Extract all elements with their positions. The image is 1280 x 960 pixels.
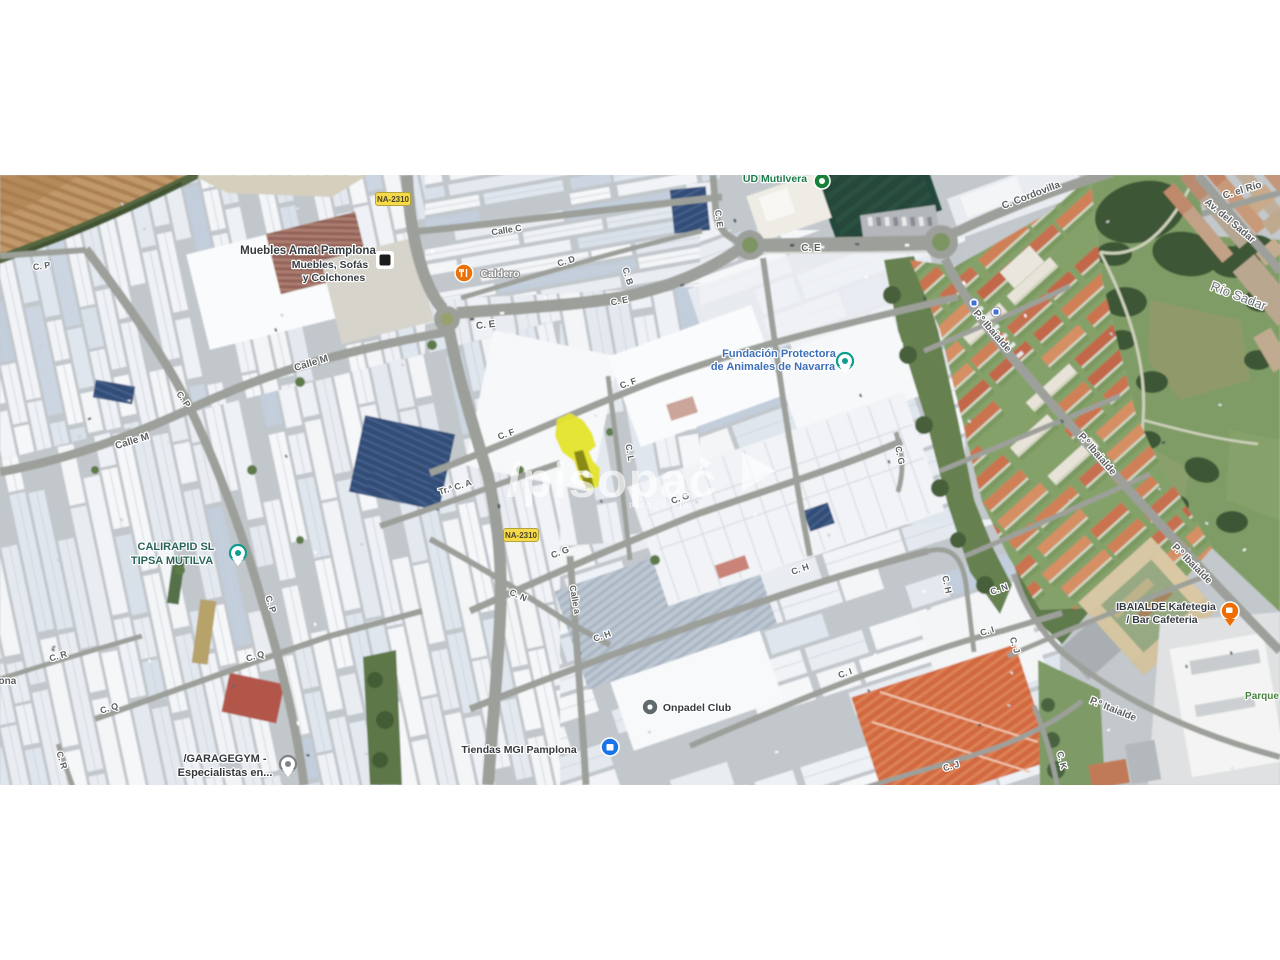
svg-text:CALIRAPID SL: CALIRAPID SL: [138, 541, 215, 553]
svg-text:C. E: C. E: [801, 243, 821, 254]
svg-text:NA-2310: NA-2310: [377, 195, 410, 204]
svg-text:TIPSA MUTILVA: TIPSA MUTILVA: [131, 555, 213, 567]
svg-text:Muebles Amat Pamplona: Muebles Amat Pamplona: [240, 245, 376, 257]
svg-text:C. E: C. E: [713, 209, 725, 228]
svg-text:/GARAGEGYM -: /GARAGEGYM -: [183, 753, 266, 765]
svg-text:Muebles, Sofás: Muebles, Sofás: [292, 259, 369, 271]
svg-text:y Colchones: y Colchones: [303, 272, 366, 284]
svg-text:Tiendas MGI Pamplona: Tiendas MGI Pamplona: [461, 744, 576, 756]
svg-text:NA-2310: NA-2310: [505, 531, 538, 540]
svg-text:/ Bar Cafeteria: / Bar Cafeteria: [1126, 614, 1197, 626]
svg-text:turagelela: turagelela: [629, 500, 691, 511]
svg-text:Fundación Protectora: Fundación Protectora: [722, 348, 837, 360]
svg-text:UD Mutilvera: UD Mutilvera: [743, 175, 807, 185]
svg-text:lona: lona: [0, 676, 17, 687]
svg-text:de Animales de Navarra: de Animales de Navarra: [711, 361, 836, 373]
svg-text:Caldero: Caldero: [480, 268, 519, 280]
svg-text:Onpadel Club: Onpadel Club: [663, 702, 731, 714]
svg-text:Parque: Parque: [1245, 691, 1279, 702]
svg-text:Especialistas en...: Especialistas en...: [178, 767, 273, 779]
svg-text:IBAIALDE Kafetegia: IBAIALDE Kafetegia: [1116, 601, 1216, 613]
